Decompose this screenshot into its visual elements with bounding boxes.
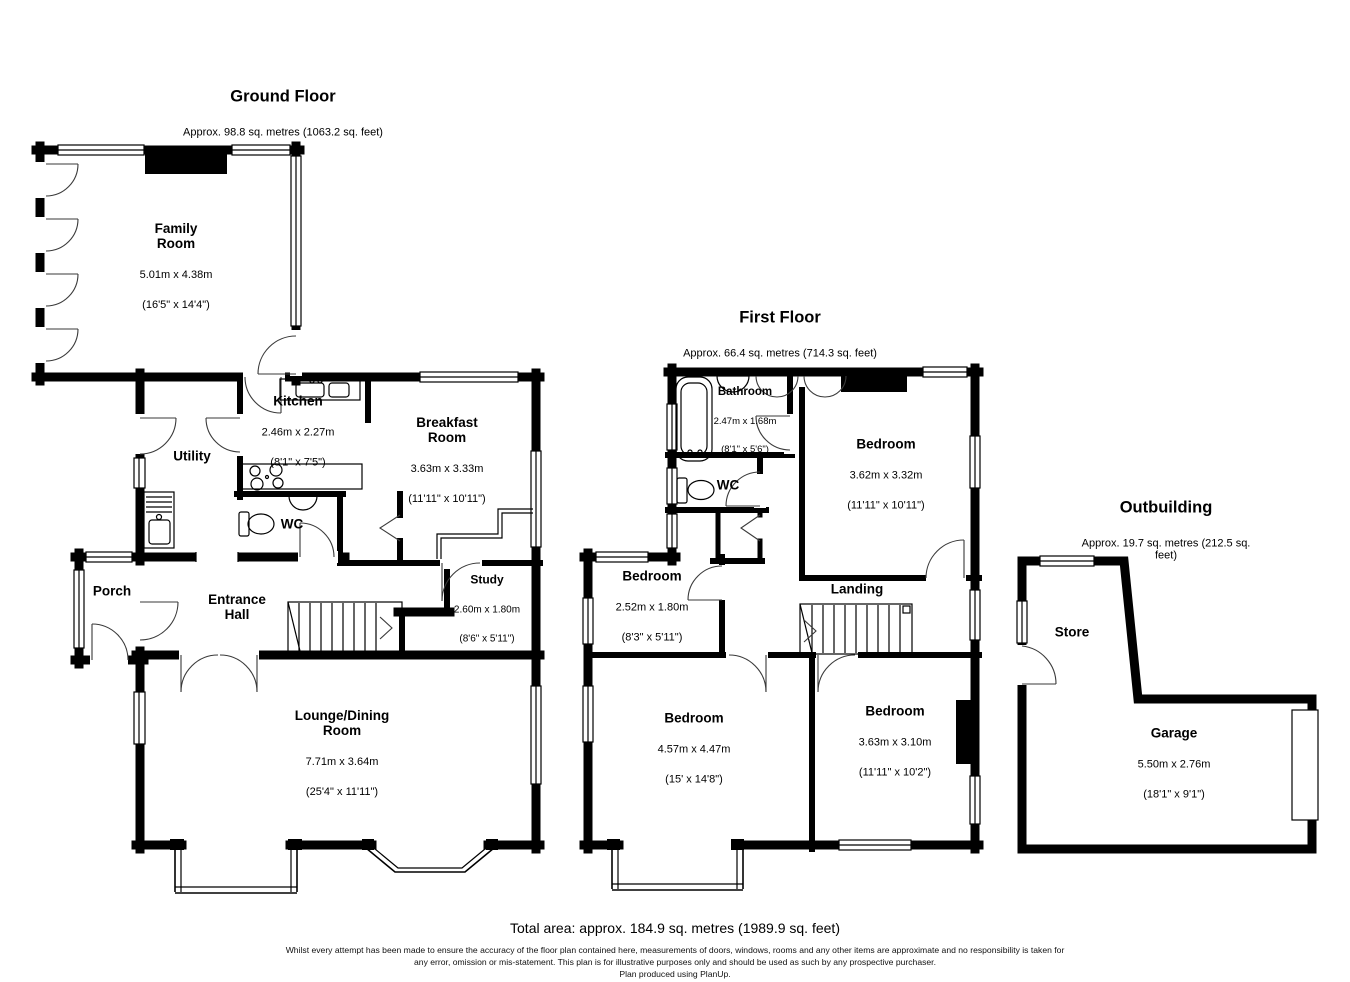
room-dims-imperial: (11'11" x 10'11") [847,499,924,511]
square-bay-window [607,839,744,890]
room-dims-imperial: (8'6" x 5'11") [454,634,520,645]
room-label-bedroom-bottom-left: Bedroom 4.57m x 4.47m (15' x 14'8") [658,692,731,803]
room-label-garage: Garage 5.50m x 2.76m (18'1" x 9'1") [1138,707,1211,818]
room-name: Breakfast Room [408,415,485,445]
room-dims-metric: 4.57m x 4.47m [658,743,731,755]
room-name: Kitchen [262,393,335,408]
ground-floor-title: Ground Floor Approx. 98.8 sq. metres (10… [183,70,383,157]
floor-title-text: First Floor [683,309,877,328]
room-name: Entrance Hall [208,592,266,622]
room-name: Bedroom [847,436,924,451]
room-dims-imperial: (18'1" x 9'1") [1138,788,1211,800]
room-name: Bathroom [714,386,777,399]
room-name: Bedroom [616,568,689,583]
room-dims-imperial: (11'11" x 10'11") [408,493,485,505]
room-name: Landing [831,581,884,596]
room-dims-imperial: (8'1" x 5'6") [714,445,777,456]
room-dims-metric: 2.46m x 2.27m [262,426,335,438]
room-label-study: Study 2.60m x 1.80m (8'6" x 5'11") [454,555,520,662]
room-dims-metric: 5.01m x 4.38m [140,269,213,281]
ground-floor-stairs [288,602,402,652]
floor-title-text: Outbuilding [1074,499,1258,518]
room-label-family-room: Family Room 5.01m x 4.38m (16'5" x 14'4"… [140,203,213,329]
room-dims-imperial: (15' x 14'8") [658,773,731,785]
square-bay-window [170,839,302,893]
room-dims-imperial: (16'5" x 14'4") [140,299,213,311]
utility-sink-icon [144,492,174,548]
first-floor-title: First Floor Approx. 66.4 sq. metres (714… [683,291,877,378]
room-label-wc-first: WC [717,460,740,511]
room-dims-metric: 2.60m x 1.80m [454,605,520,616]
floor-title-text: Ground Floor [183,88,383,107]
room-name: Garage [1138,725,1211,740]
room-dims-imperial: (25'4" x 11'11") [295,786,389,798]
room-label-entrance-hall: Entrance Hall [208,574,266,640]
room-dims-metric: 3.63m x 3.10m [859,736,932,748]
room-name: Study [454,573,520,586]
room-dims-metric: 2.47m x 1.68m [714,417,777,428]
room-name: Lounge/Dining Room [295,708,389,738]
room-label-bathroom: Bathroom 2.47m x 1.68m (8'1" x 5'6") [714,368,777,474]
room-name: Bedroom [658,710,731,725]
room-dims-imperial: (11'11" x 10'2") [859,766,932,778]
room-label-bedroom-bottom-right: Bedroom 3.63m x 3.10m (11'11" x 10'2") [859,685,932,796]
bifold-door-icon [380,515,400,541]
room-label-store: Store [1055,607,1090,658]
wc-toilet-icon [677,478,714,503]
disclaimer-line-1: Whilst every attempt has been made to en… [286,945,1065,955]
room-label-porch: Porch [93,566,131,617]
room-dims-metric: 2.52m x 1.80m [616,601,689,613]
floor-subtitle-text: Approx. 19.7 sq. metres (212.5 sq. feet) [1074,538,1258,562]
room-dims-metric: 5.50m x 2.76m [1138,758,1211,770]
bath-tub-icon [676,377,712,461]
room-label-bedroom-mid: Bedroom 2.52m x 1.80m (8'3" x 5'11") [616,550,689,661]
room-label-bedroom-top: Bedroom 3.62m x 3.32m (11'11" x 10'11") [847,418,924,529]
floor-plan-page: Ground Floor Approx. 98.8 sq. metres (10… [0,0,1350,982]
floor-subtitle-text: Approx. 98.8 sq. metres (1063.2 sq. feet… [183,127,383,139]
total-area-text: Total area: approx. 184.9 sq. metres (19… [510,920,840,936]
room-label-breakfast-room: Breakfast Room 3.63m x 3.33m (11'11" x 1… [408,397,485,523]
room-label-wc-ground: WC [281,499,304,550]
room-name: Family Room [140,221,213,251]
room-name: Utility [173,448,211,463]
wc-toilet-icon [239,512,274,536]
room-name: Bedroom [859,703,932,718]
room-dims-metric: 3.63m x 3.33m [408,463,485,475]
outbuilding-title: Outbuilding Approx. 19.7 sq. metres (212… [1074,481,1258,580]
room-label-utility: Utility [173,431,211,482]
room-name: WC [281,516,304,531]
garage-door [1292,710,1318,820]
angled-bay-window [362,839,498,872]
room-name: Porch [93,583,131,598]
room-dims-metric: 7.71m x 3.64m [295,756,389,768]
bifold-door-icon [741,515,760,541]
planup-credit-text: Plan produced using PlanUp. [619,969,730,979]
room-dims-imperial: (8'3" x 5'11") [616,631,689,643]
room-label-lounge-dining: Lounge/Dining Room 7.71m x 3.64m (25'4" … [295,690,389,816]
room-dims-metric: 3.62m x 3.32m [847,469,924,481]
room-name: Store [1055,624,1090,639]
room-name: WC [717,477,740,492]
chimney-breast [956,700,975,764]
room-dims-imperial: (8'1" x 7'5") [262,456,335,468]
room-label-landing: Landing [831,564,884,615]
disclaimer-line-2: any error, omission or mis-statement. Th… [414,957,936,967]
room-label-kitchen: Kitchen 2.46m x 2.27m (8'1" x 7'5") [262,375,335,486]
floor-subtitle-text: Approx. 66.4 sq. metres (714.3 sq. feet) [683,348,877,360]
